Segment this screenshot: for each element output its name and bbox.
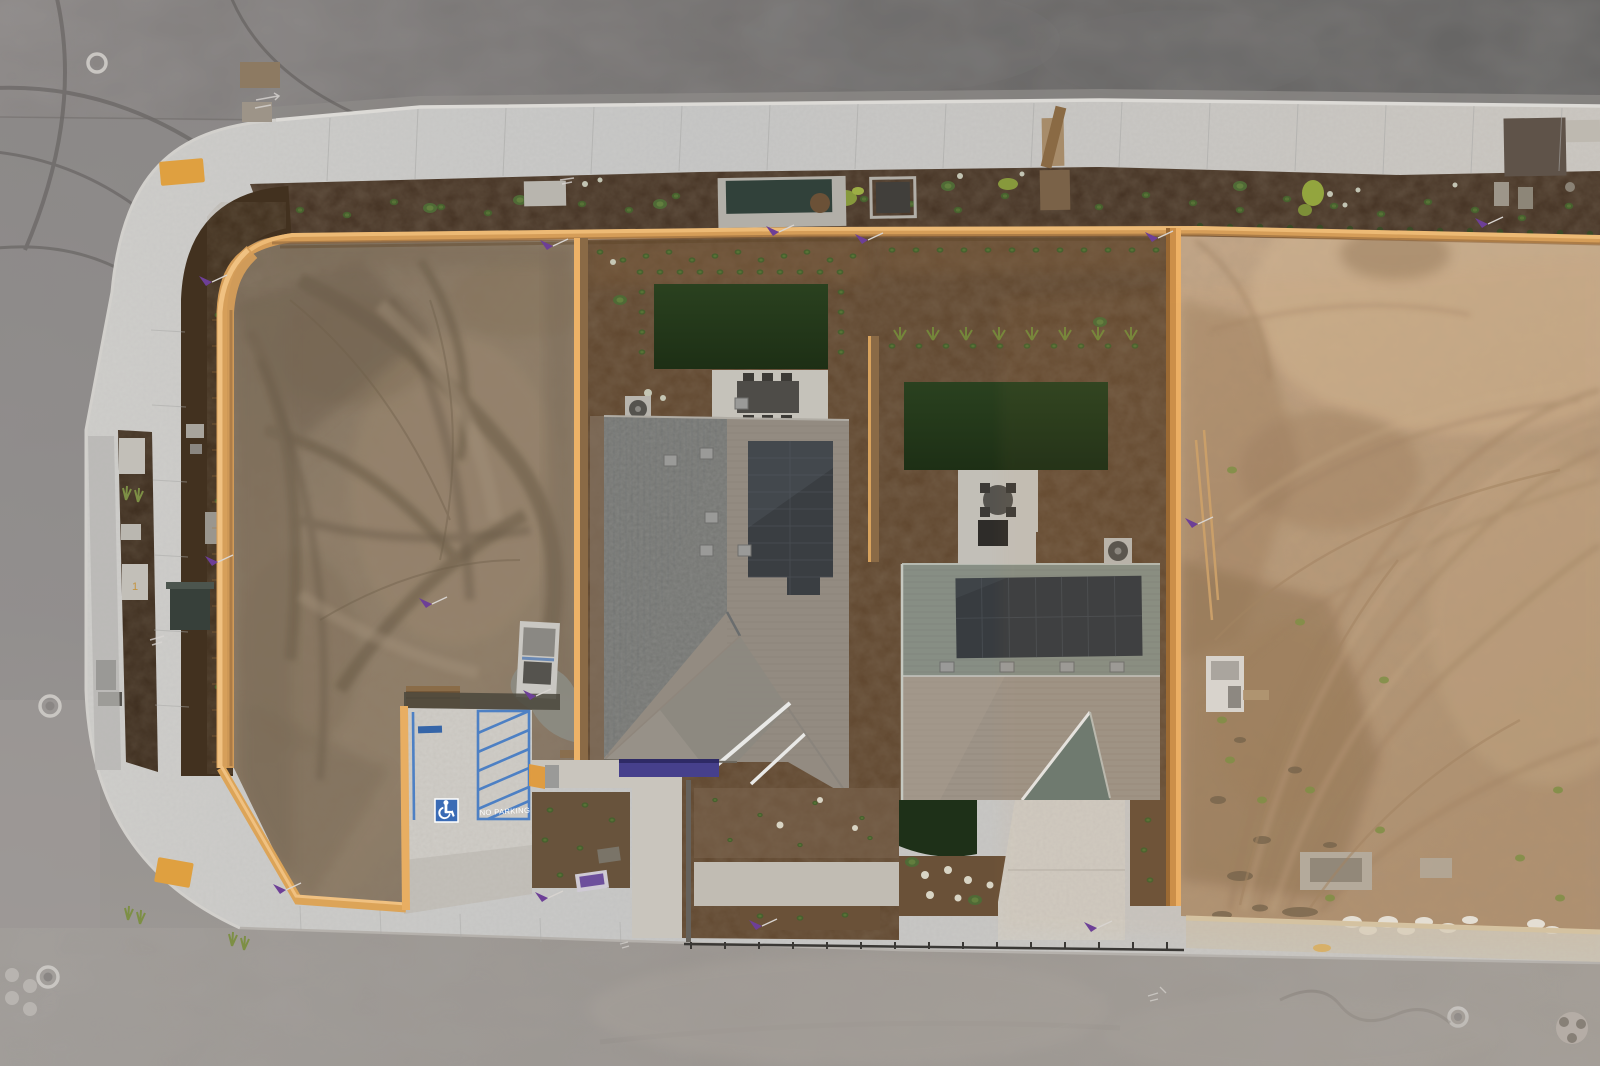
svg-text:1: 1: [132, 581, 138, 593]
